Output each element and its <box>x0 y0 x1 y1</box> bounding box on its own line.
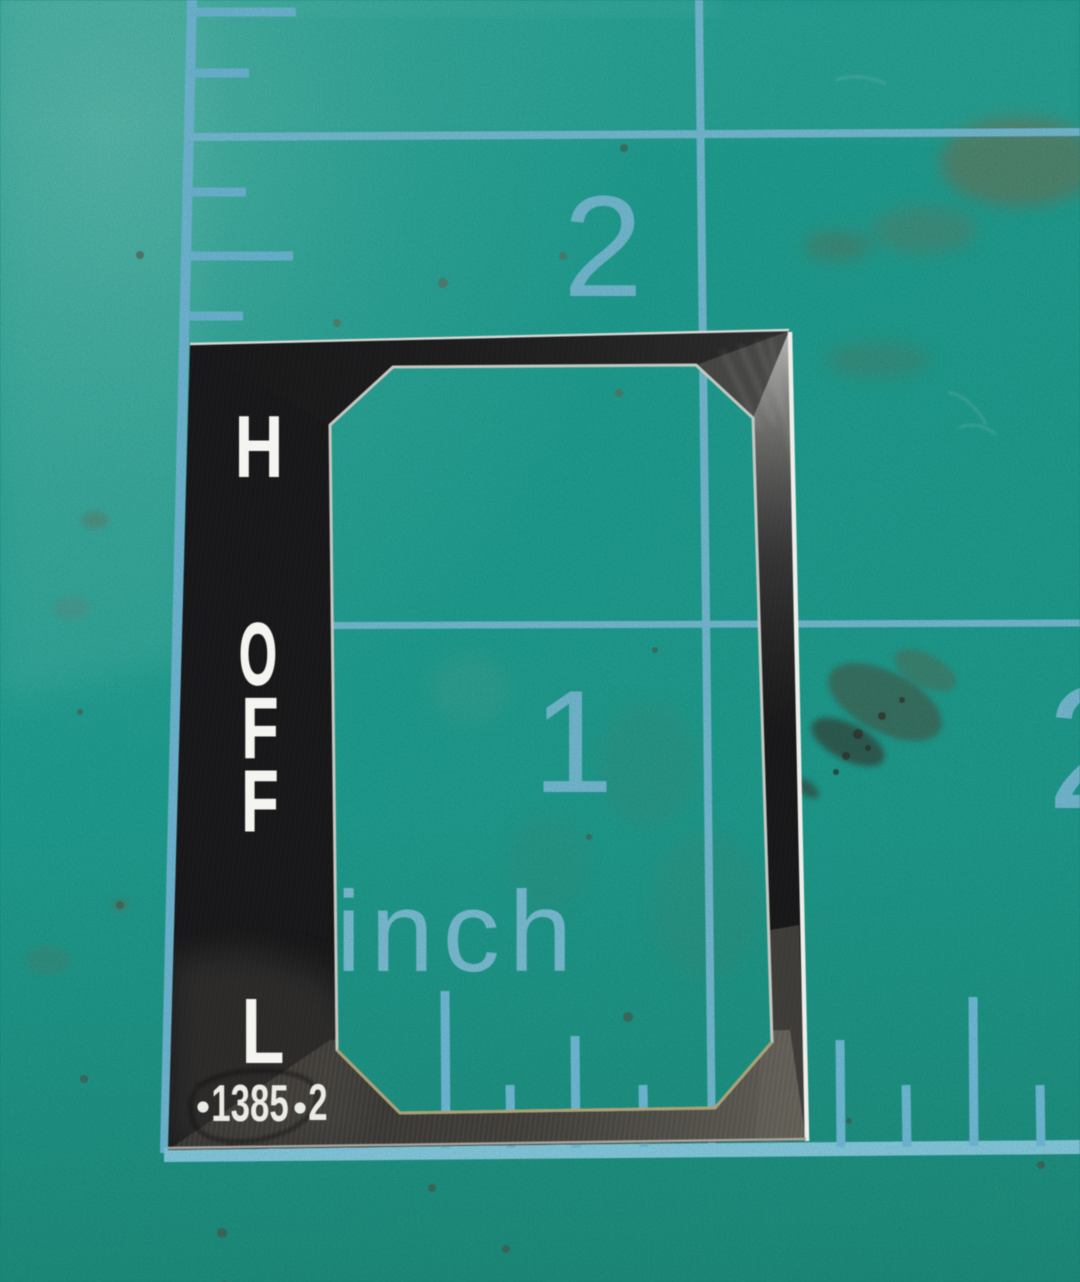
svg-text:H: H <box>235 397 284 496</box>
svg-text:F: F <box>241 752 278 849</box>
svg-text:2: 2 <box>308 1074 327 1132</box>
svg-text:1385: 1385 <box>211 1075 288 1133</box>
svg-text:L: L <box>241 979 284 1084</box>
